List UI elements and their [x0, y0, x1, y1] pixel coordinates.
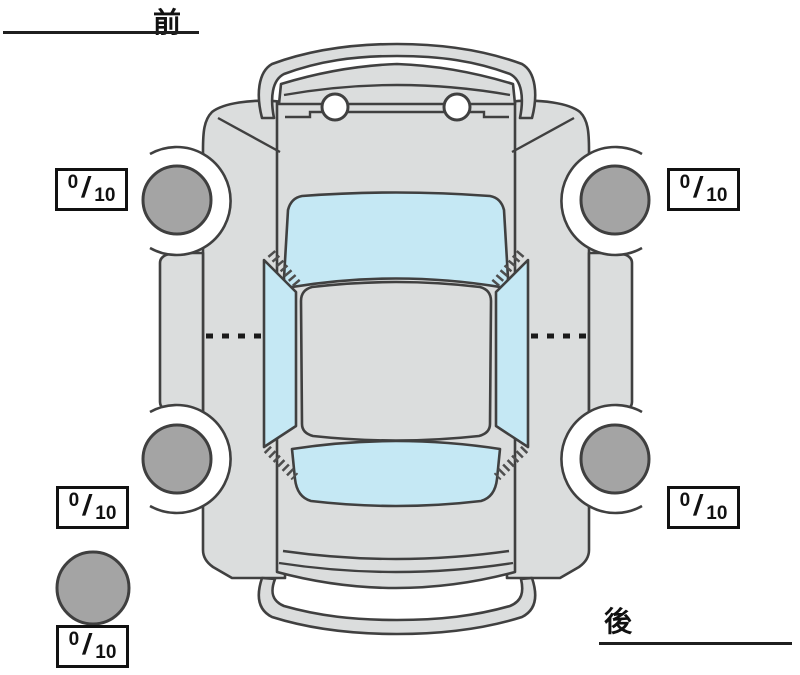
- front-label: 前: [153, 1, 181, 41]
- tread-value: 0: [69, 630, 80, 649]
- tread-max: 10: [706, 186, 727, 205]
- tread-value: 0: [680, 173, 691, 192]
- rear-window: [292, 441, 500, 506]
- tread-separator: /: [692, 174, 704, 203]
- tread-value: 0: [68, 173, 79, 192]
- tread-value: 0: [69, 491, 80, 510]
- hood-marker-right: [444, 94, 470, 120]
- tread-separator: /: [81, 631, 93, 660]
- tread-score-front-left[interactable]: 0 / 10: [55, 168, 128, 211]
- hood-marker-left: [322, 94, 348, 120]
- tread-max: 10: [95, 643, 116, 662]
- right-sill-panel: [589, 253, 632, 412]
- right-side-window: [496, 260, 528, 447]
- tread-score-rear-left[interactable]: 0 / 10: [56, 486, 129, 529]
- car-top-view: [0, 0, 800, 675]
- left-sill-panel: [160, 253, 203, 412]
- tread-max: 10: [94, 186, 115, 205]
- tread-max: 10: [95, 504, 116, 523]
- roof: [301, 282, 491, 441]
- front-label-underline: [3, 31, 199, 34]
- tire-inspection-diagram: 前 後 0 / 10 0 / 10 0 / 10 0 / 10 0 / 10: [0, 0, 800, 675]
- front-right-tire: [581, 166, 649, 234]
- tread-score-front-right[interactable]: 0 / 10: [667, 168, 740, 211]
- tread-separator: /: [81, 492, 93, 521]
- left-side-window: [264, 260, 296, 447]
- rear-left-tire: [143, 425, 211, 493]
- windshield: [284, 193, 508, 288]
- rear-right-tire: [581, 425, 649, 493]
- tread-max: 10: [706, 504, 727, 523]
- tread-value: 0: [680, 491, 691, 510]
- rear-label-underline: [599, 642, 792, 645]
- front-left-tire: [143, 166, 211, 234]
- spare-tire: [57, 552, 129, 624]
- tread-score-rear-right[interactable]: 0 / 10: [667, 486, 740, 529]
- tread-separator: /: [80, 174, 92, 203]
- tread-separator: /: [692, 492, 704, 521]
- tread-score-spare[interactable]: 0 / 10: [56, 625, 129, 668]
- rear-label: 後: [604, 600, 632, 640]
